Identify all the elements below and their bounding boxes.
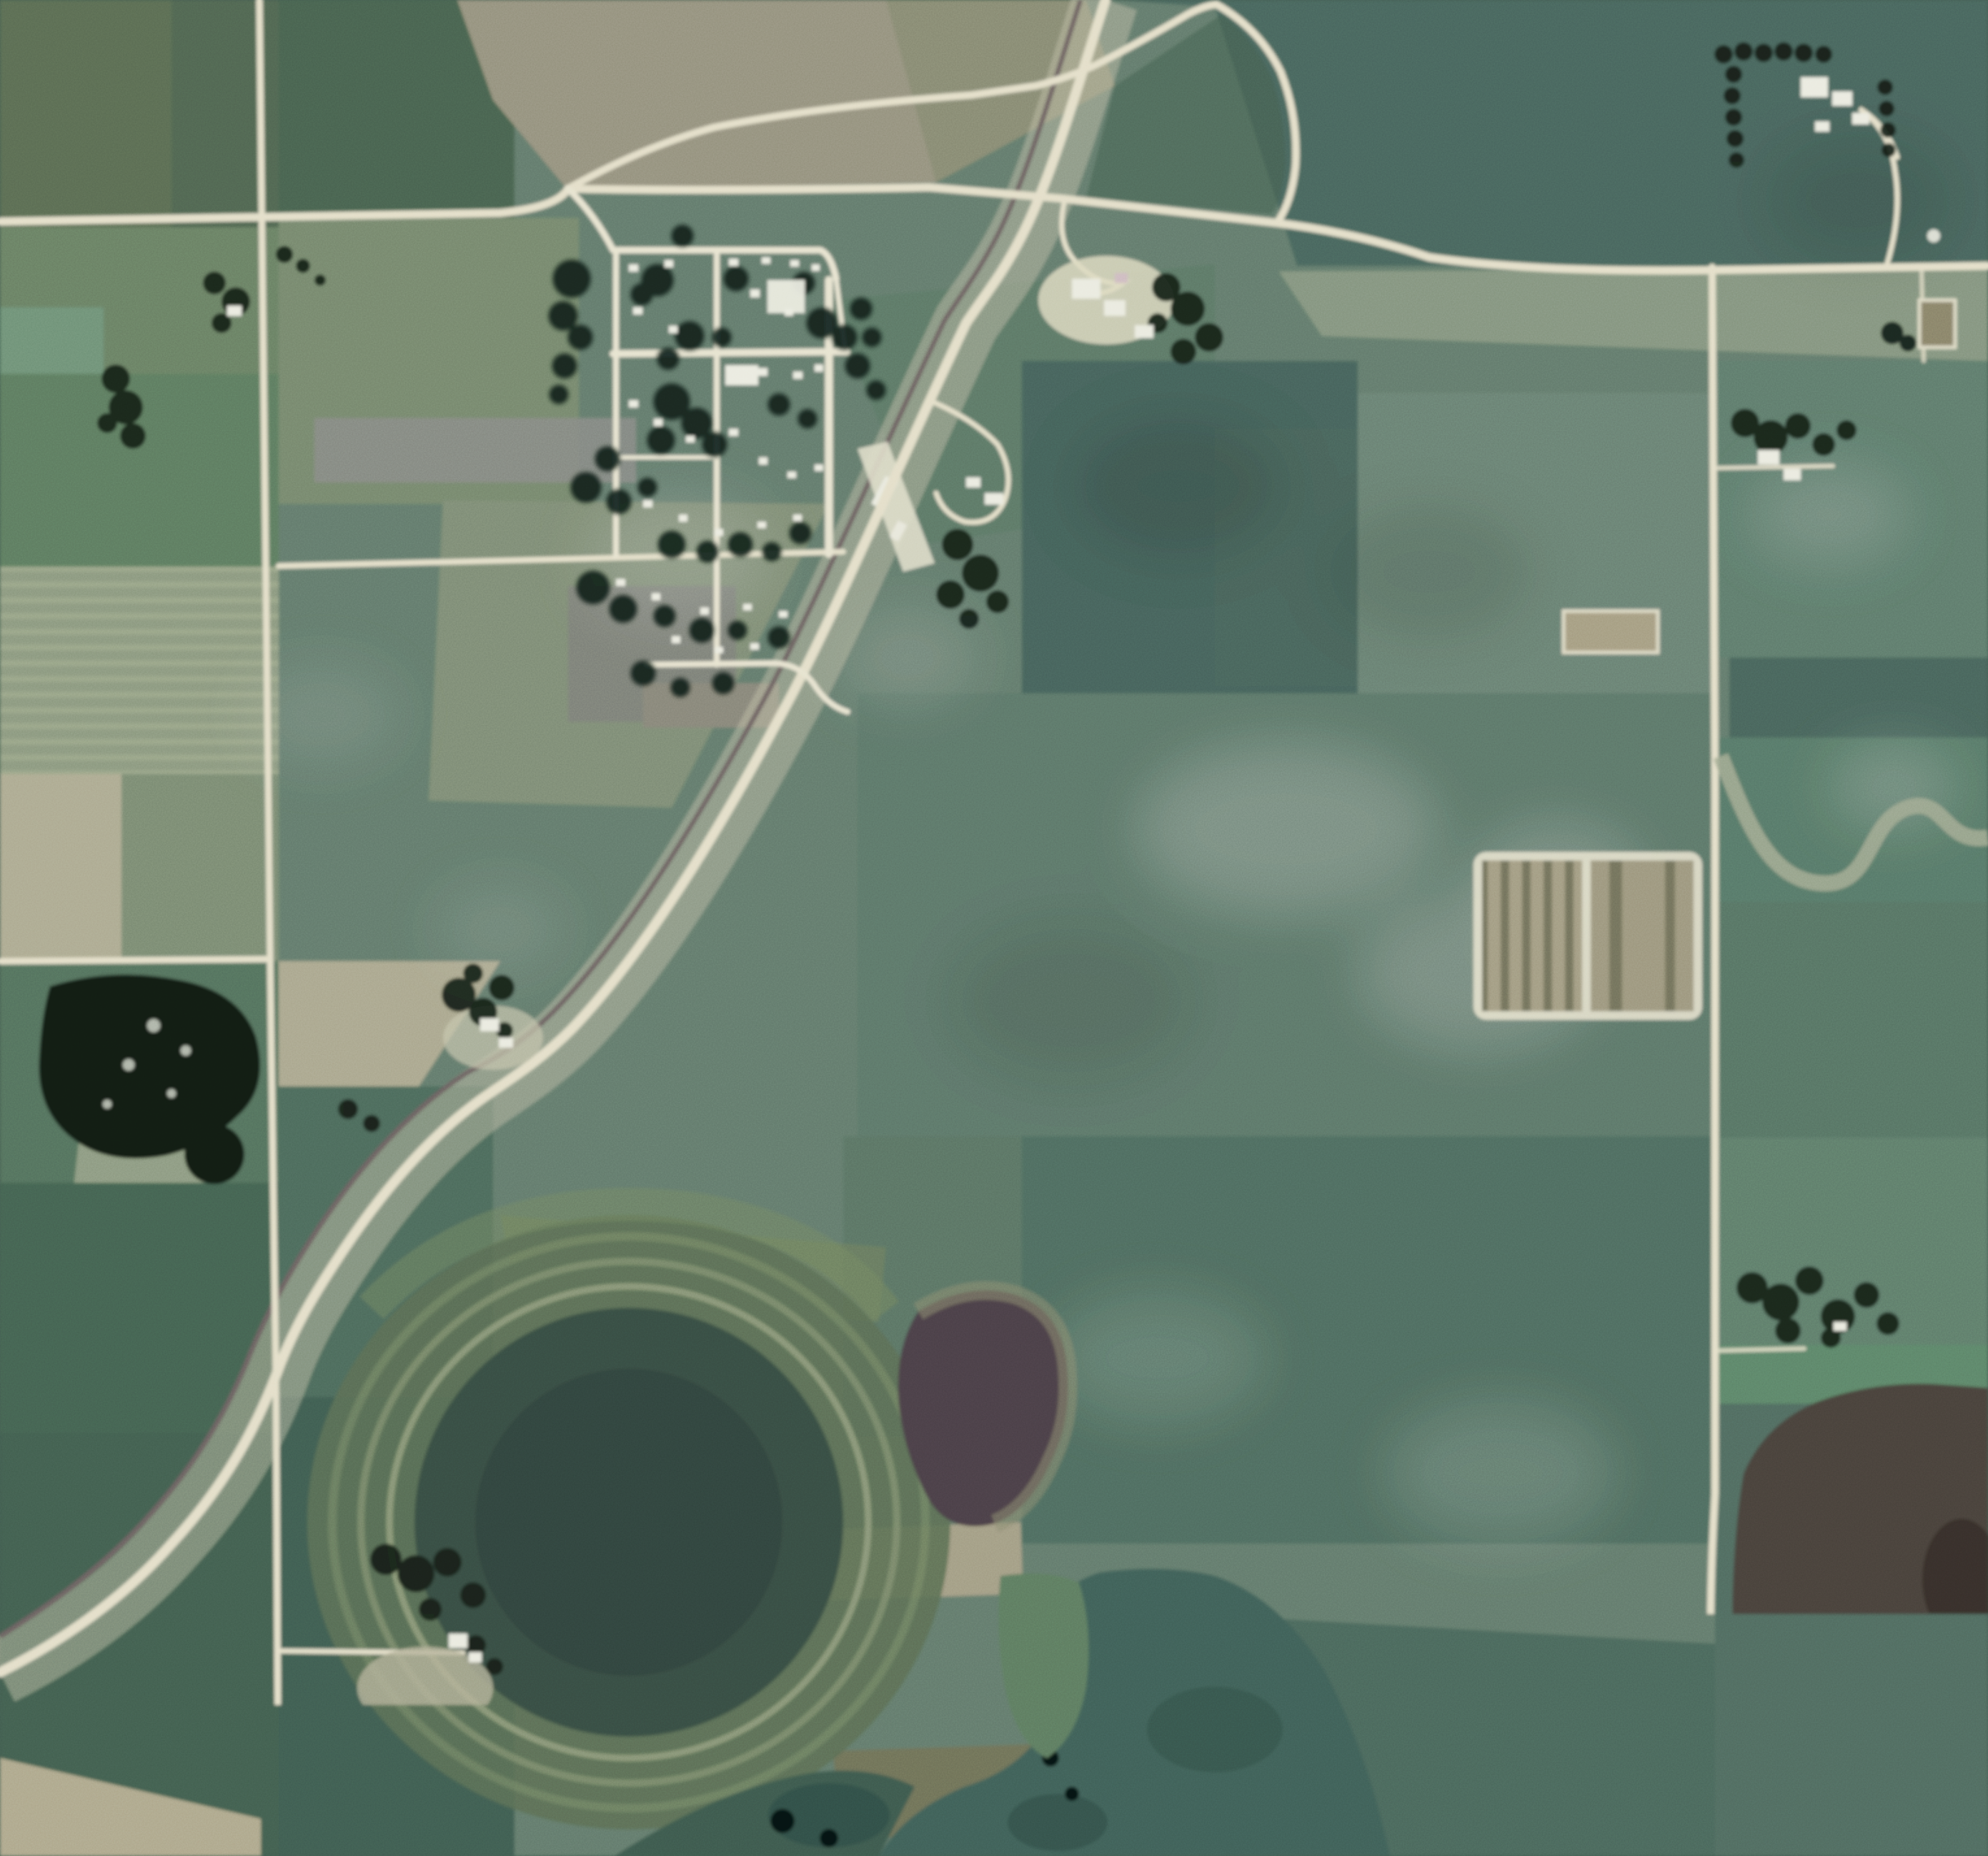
color-cast <box>0 0 1988 1856</box>
aerial-photo-page: { "scene": { "title": "Color aerial orth… <box>0 0 1988 1856</box>
aerial-photograph: Color aerial orthophoto of a small rural… <box>0 0 1988 1856</box>
